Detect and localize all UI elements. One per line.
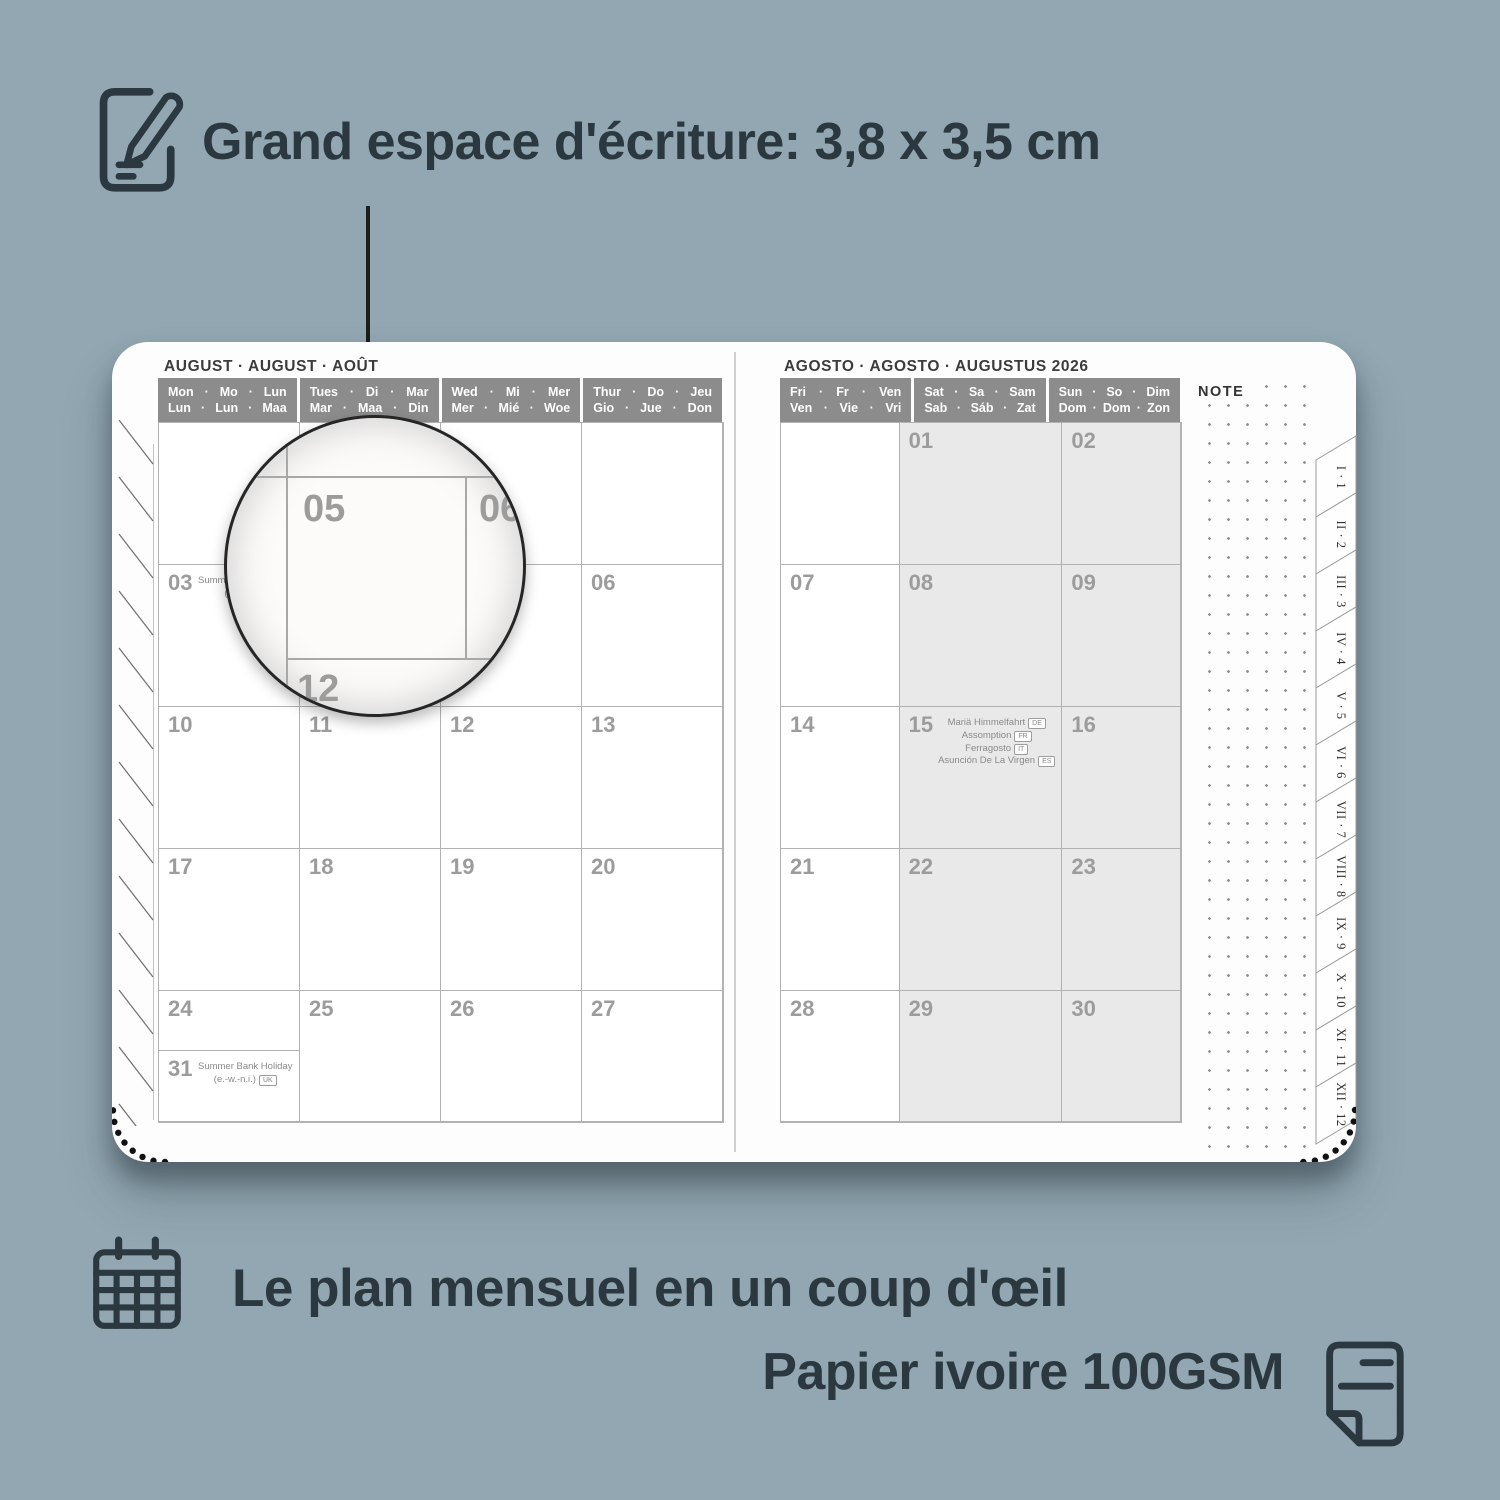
month-tab-label: VIII · 8 (1334, 855, 1348, 897)
note-pencil-icon (92, 78, 188, 194)
month-tab-label: XII · 12 (1334, 1082, 1348, 1126)
magnifier-circle: 05 06 12 (224, 415, 526, 717)
left-page-title: AUGUST · AUGUST · AOÛT (164, 358, 378, 376)
magnified-grid-line (286, 658, 526, 660)
country-code-badge: FR (1014, 731, 1031, 742)
calendar-day-cell: 06 (582, 565, 723, 707)
month-tab-label: IV · 4 (1334, 632, 1348, 665)
date-number: 28 (790, 998, 814, 1020)
date-number: 19 (450, 856, 474, 878)
country-code-badge: UK (259, 1075, 277, 1086)
holiday-label: Mariä HimmelfahrtDEAssomptionFRFerragost… (938, 717, 1055, 768)
country-code-badge: ES (1038, 756, 1055, 767)
calendar-day-cell: 29 (900, 991, 1063, 1122)
product-image-canvas: Grand espace d'écriture: 3,8 x 3,5 cm AU… (0, 0, 1500, 1500)
date-number: 10 (168, 714, 192, 736)
magnified-date-05: 05 (303, 490, 345, 528)
magnified-grid-line (227, 476, 523, 478)
calendar-day-cell: 24 (159, 991, 300, 1051)
date-number: 02 (1071, 430, 1095, 452)
month-tab-label: VII · 7 (1334, 801, 1348, 839)
date-number: 22 (909, 856, 933, 878)
calendar-day-cell: 26 (441, 991, 582, 1122)
calendar-day-cell: 16 (1062, 707, 1181, 849)
left-day-header-row: Mon·Mo·LunLun·Lun·MaaTues·Di·MarMar·Maa·… (158, 378, 722, 422)
calendar-day-cell: 11 (300, 707, 441, 849)
calendar-day-cell: 07 (781, 565, 900, 707)
calendar-day-cell: 13 (582, 707, 723, 849)
calendar-day-cell: 01 (900, 423, 1063, 565)
note-label: NOTE (1196, 382, 1254, 404)
magnified-grid-line (286, 418, 288, 714)
day-header-cell: Fri·Fr·VenVen·Vie·Vri (780, 378, 911, 422)
month-tab-label: X · 10 (1334, 973, 1348, 1008)
date-number: 30 (1071, 998, 1095, 1020)
calendar-day-cell: 22 (900, 849, 1063, 991)
date-number: 27 (591, 998, 615, 1020)
right-page-title: AGOSTO · AGOSTO · AUGUSTUS 2026 (784, 358, 1089, 376)
month-index-tabs: I · 1II · 2III · 3IV · 4V · 5VI · 6VII ·… (1314, 432, 1360, 1148)
day-header-cell: Sat·Sa·SamSab·Sáb·Zat (914, 378, 1045, 422)
date-number: 23 (1071, 856, 1095, 878)
month-tab-label: II · 2 (1334, 521, 1348, 549)
paper-feature-text: Papier ivoire 100GSM (762, 1342, 1284, 1402)
right-day-header-row: Fri·Fr·VenVen·Vie·VriSat·Sa·SamSab·Sáb·Z… (780, 378, 1180, 422)
holiday-label: Summer Bank Holiday(e.-w.-n.i.)UK (197, 1061, 293, 1087)
calendar-day-cell: 28 (781, 991, 900, 1122)
date-number: 29 (909, 998, 933, 1020)
calendar-grid-icon (86, 1234, 188, 1336)
note-dot-grid: NOTE (1194, 382, 1318, 1154)
date-number: 12 (450, 714, 474, 736)
day-header-cell: Thur·Do·JeuGio·Jue·Don (583, 378, 722, 422)
country-code-badge: DE (1028, 718, 1046, 729)
calendar-day-cell: 25 (300, 991, 441, 1122)
month-tab-label: VI · 6 (1334, 746, 1348, 779)
date-number: 21 (790, 856, 814, 878)
magnified-date-06: 06 (479, 490, 521, 528)
calendar-day-cell: 27 (582, 991, 723, 1122)
calendar-day-cell (582, 423, 723, 565)
date-number: 07 (790, 572, 814, 594)
date-number: 08 (909, 572, 933, 594)
calendar-day-cell: 02 (1062, 423, 1181, 565)
date-number: 17 (168, 856, 192, 878)
calendar-day-cell (781, 423, 900, 565)
page-edge-hatching (118, 420, 156, 1126)
calendar-day-cell: 30 (1062, 991, 1181, 1122)
spine-divider (734, 352, 736, 1152)
date-number: 01 (909, 430, 933, 452)
calendar-day-cell: 21 (781, 849, 900, 991)
day-header-cell: Wed·Mi·MerMer·Mié·Woe (442, 378, 581, 422)
month-tab-label: XI · 11 (1334, 1028, 1348, 1067)
date-number: 24 (168, 998, 192, 1020)
calendar-day-cell: 20 (582, 849, 723, 991)
magnified-date-12: 12 (297, 670, 339, 708)
day-header-cell: Mon·Mo·LunLun·Lun·Maa (158, 378, 297, 422)
right-month-grid: 01020708091415Mariä HimmelfahrtDEAssompt… (780, 422, 1182, 1123)
date-number: 20 (591, 856, 615, 878)
day-header-cell: Sun·So·DimDom·Dom·Zon (1049, 378, 1180, 422)
month-tab-label: III · 3 (1334, 575, 1348, 608)
calendar-day-cell: 17 (159, 849, 300, 991)
month-tab-label: V · 5 (1334, 692, 1348, 720)
date-number: 25 (309, 998, 333, 1020)
monthly-overview-feature-text: Le plan mensuel en un coup d'œil (232, 1258, 1068, 1319)
calendar-day-cell: 08 (900, 565, 1063, 707)
date-number: 18 (309, 856, 333, 878)
date-number: 13 (591, 714, 615, 736)
date-number: 03 (168, 572, 192, 594)
country-code-badge: IT (1014, 744, 1028, 755)
date-number: 16 (1071, 714, 1095, 736)
date-number: 06 (591, 572, 615, 594)
calendar-day-cell: 31Summer Bank Holiday(e.-w.-n.i.)UK (159, 1051, 300, 1122)
calendar-day-cell: 09 (1062, 565, 1181, 707)
date-number: 15 (909, 714, 933, 736)
writing-space-feature-text: Grand espace d'écriture: 3,8 x 3,5 cm (202, 112, 1101, 172)
month-tab-label: I · 1 (1334, 466, 1348, 489)
calendar-day-cell: 15Mariä HimmelfahrtDEAssomptionFRFerrago… (900, 707, 1063, 849)
magnified-grid-line (465, 476, 467, 660)
date-number: 14 (790, 714, 814, 736)
date-number: 31 (168, 1058, 192, 1080)
calendar-day-cell: 14 (781, 707, 900, 849)
date-number: 11 (309, 714, 332, 736)
date-number: 26 (450, 998, 474, 1020)
calendar-day-cell: 23 (1062, 849, 1181, 991)
calendar-day-cell: 12 (441, 707, 582, 849)
date-number: 09 (1071, 572, 1095, 594)
paper-sheet-icon (1312, 1330, 1410, 1458)
calendar-day-cell: 19 (441, 849, 582, 991)
calendar-day-cell: 18 (300, 849, 441, 991)
month-tab-label: IX · 9 (1334, 917, 1348, 950)
calendar-day-cell: 10 (159, 707, 300, 849)
